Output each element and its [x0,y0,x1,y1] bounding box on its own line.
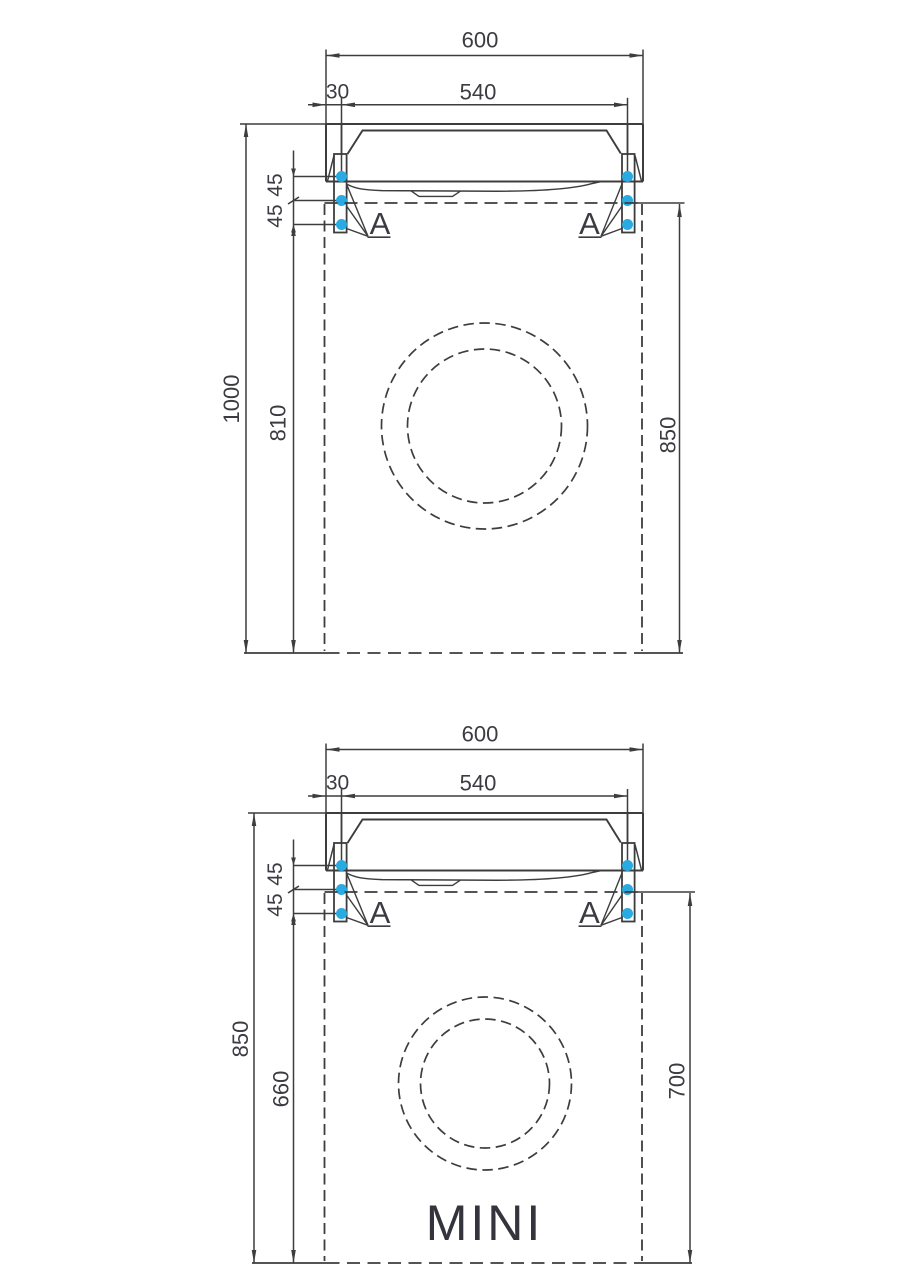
svg-text:45: 45 [264,173,287,196]
svg-text:A: A [579,206,600,241]
svg-text:45: 45 [264,893,287,916]
svg-text:1000: 1000 [219,375,244,424]
svg-text:30: 30 [326,772,349,795]
svg-text:600: 600 [462,722,499,747]
svg-text:A: A [370,895,391,930]
svg-text:850: 850 [656,417,681,454]
svg-text:45: 45 [264,862,287,885]
svg-text:MINI: MINI [426,1195,544,1251]
svg-text:600: 600 [462,28,499,53]
svg-text:700: 700 [665,1063,690,1100]
svg-text:A: A [370,206,391,241]
svg-text:850: 850 [228,1021,253,1058]
svg-text:A: A [579,895,600,930]
svg-text:660: 660 [269,1071,294,1108]
svg-text:45: 45 [264,204,287,227]
svg-text:810: 810 [266,405,291,442]
svg-text:540: 540 [460,771,497,796]
svg-text:540: 540 [460,79,497,104]
svg-text:30: 30 [326,80,349,103]
